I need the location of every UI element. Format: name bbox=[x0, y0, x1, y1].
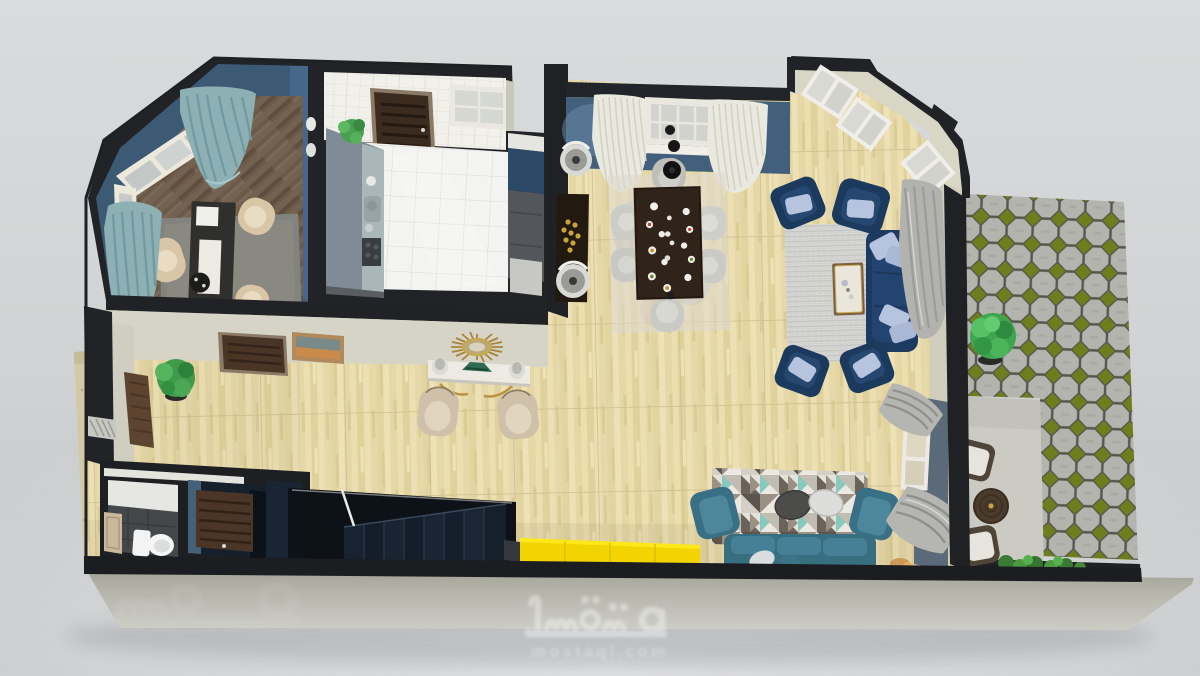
svg-text:mostaql.com: mostaql.com bbox=[531, 642, 669, 661]
